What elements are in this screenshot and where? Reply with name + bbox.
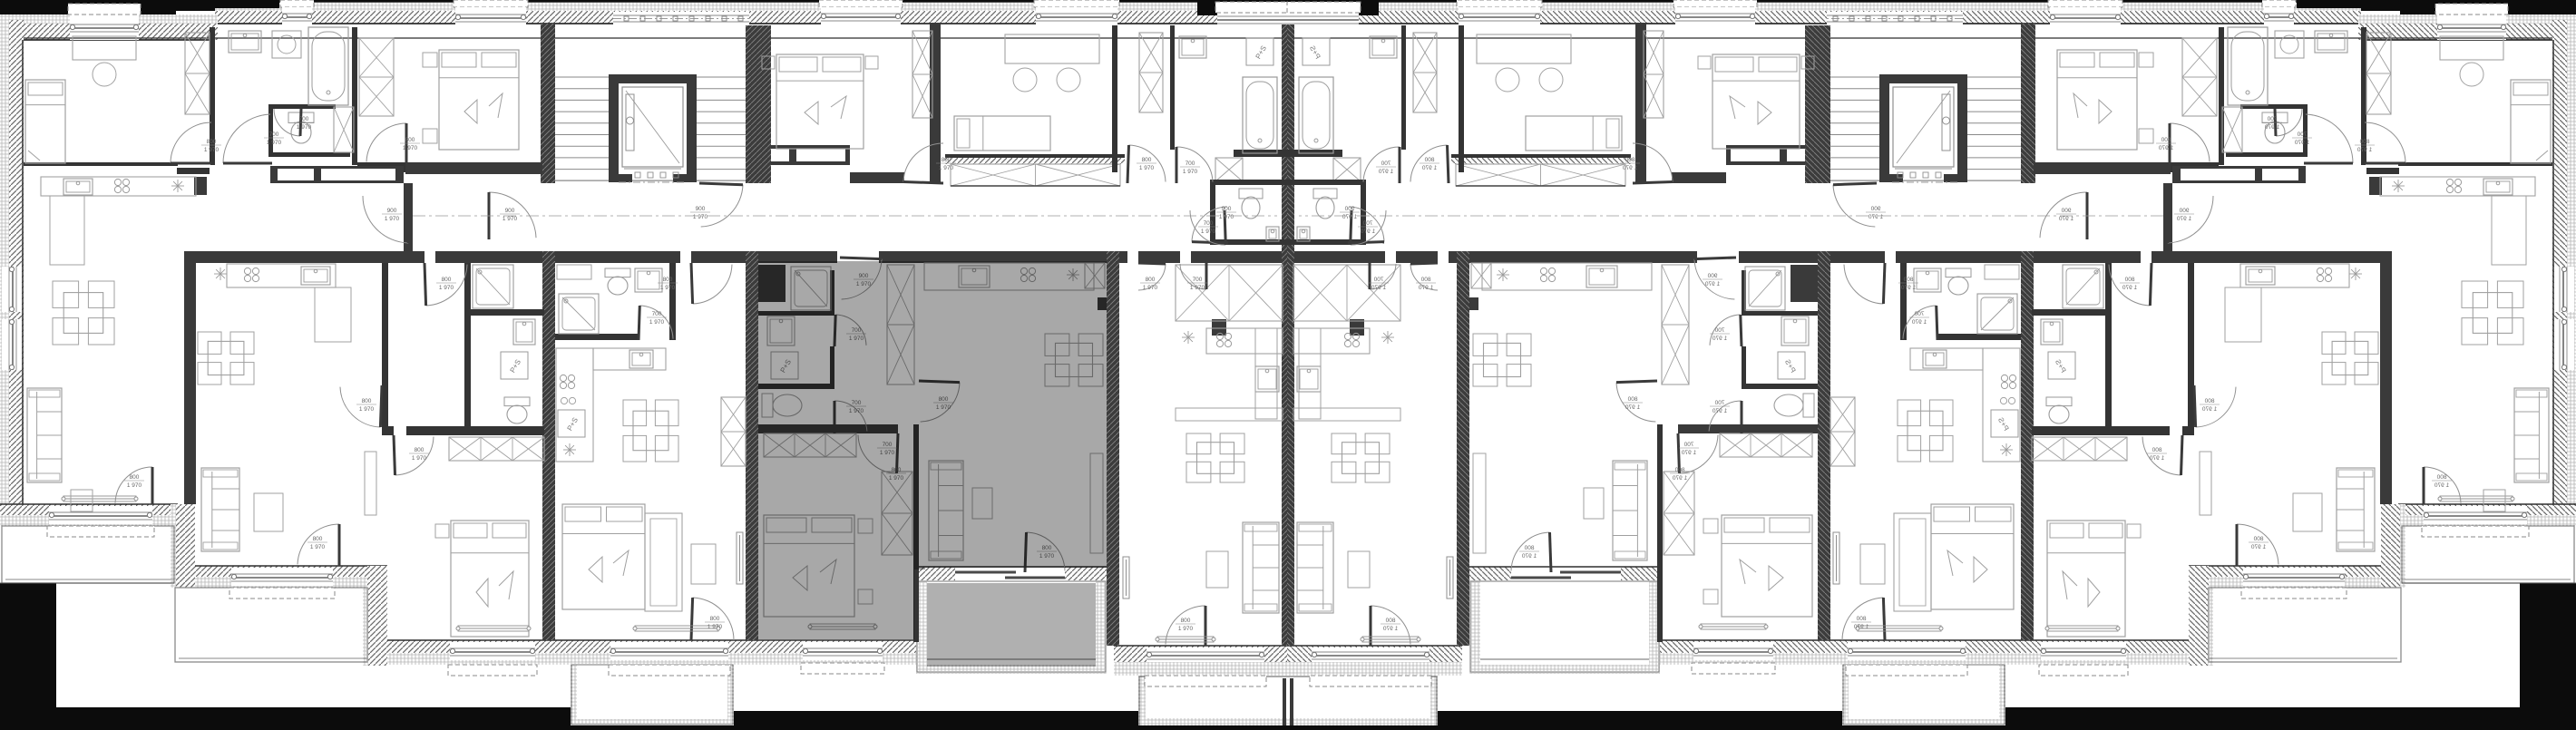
svg-text:1 970: 1 970 <box>127 482 142 489</box>
svg-text:700: 700 <box>652 311 662 317</box>
svg-text:800: 800 <box>1181 618 1191 624</box>
svg-text:800: 800 <box>1146 277 1156 283</box>
svg-text:800: 800 <box>942 157 951 163</box>
svg-text:800: 800 <box>130 474 140 481</box>
svg-text:800: 800 <box>405 137 415 143</box>
svg-text:900: 900 <box>696 206 706 212</box>
svg-text:800: 800 <box>442 277 452 283</box>
svg-text:800: 800 <box>1142 157 1152 163</box>
svg-text:700: 700 <box>1204 220 1214 227</box>
svg-text:800: 800 <box>710 616 720 622</box>
svg-text:1 970: 1 970 <box>204 147 220 153</box>
svg-text:1 970: 1 970 <box>1183 169 1198 175</box>
svg-text:1 970: 1 970 <box>297 124 312 131</box>
svg-text:1 970: 1 970 <box>359 406 375 413</box>
svg-text:1 970: 1 970 <box>1178 626 1194 632</box>
svg-text:1 970: 1 970 <box>412 455 427 462</box>
svg-text:1 970: 1 970 <box>267 140 282 146</box>
svg-text:800: 800 <box>362 398 372 404</box>
svg-text:800: 800 <box>663 277 673 283</box>
svg-text:1 970: 1 970 <box>939 165 954 171</box>
svg-text:700: 700 <box>269 131 279 138</box>
svg-text:1 970: 1 970 <box>1190 285 1205 291</box>
svg-text:1 970: 1 970 <box>439 285 454 291</box>
svg-text:900: 900 <box>1222 206 1232 212</box>
svg-text:1 970: 1 970 <box>707 624 723 630</box>
svg-text:700: 700 <box>299 116 309 122</box>
svg-text:1 970: 1 970 <box>503 216 518 222</box>
svg-text:800: 800 <box>415 447 424 453</box>
svg-text:800: 800 <box>313 536 323 542</box>
svg-text:1 970: 1 970 <box>385 216 400 222</box>
svg-text:1 970: 1 970 <box>693 214 708 220</box>
svg-text:900: 900 <box>505 208 515 214</box>
svg-text:1 970: 1 970 <box>1143 285 1158 291</box>
svg-text:1 970: 1 970 <box>1201 229 1216 235</box>
svg-text:700: 700 <box>1193 277 1203 283</box>
svg-text:1 970: 1 970 <box>649 319 665 326</box>
svg-text:1 970: 1 970 <box>403 145 418 151</box>
svg-text:1 970: 1 970 <box>1219 214 1234 220</box>
svg-text:800: 800 <box>207 139 217 145</box>
svg-text:700: 700 <box>1186 161 1195 167</box>
svg-text:900: 900 <box>387 208 397 214</box>
svg-text:1 970: 1 970 <box>310 544 326 550</box>
svg-text:1 970: 1 970 <box>1139 165 1155 171</box>
svg-text:1 970: 1 970 <box>660 285 676 291</box>
